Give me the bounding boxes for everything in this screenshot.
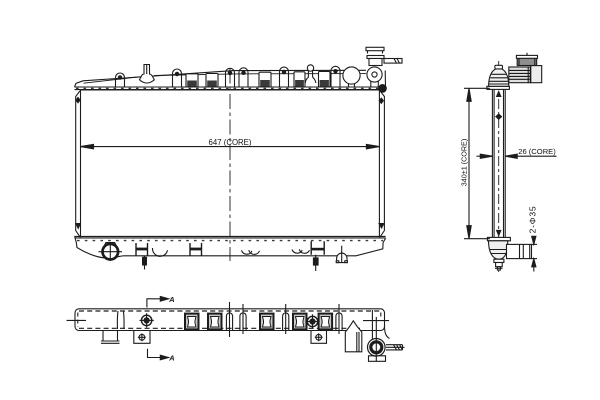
svg-text:340±1 (CORE): 340±1 (CORE) (459, 139, 468, 186)
svg-text:647 (CORE): 647 (CORE) (209, 138, 252, 147)
svg-text:A: A (168, 354, 174, 363)
svg-text:26 (CORE): 26 (CORE) (518, 147, 556, 156)
svg-text:2-Φ35: 2-Φ35 (527, 206, 537, 234)
svg-text:A: A (168, 295, 174, 304)
